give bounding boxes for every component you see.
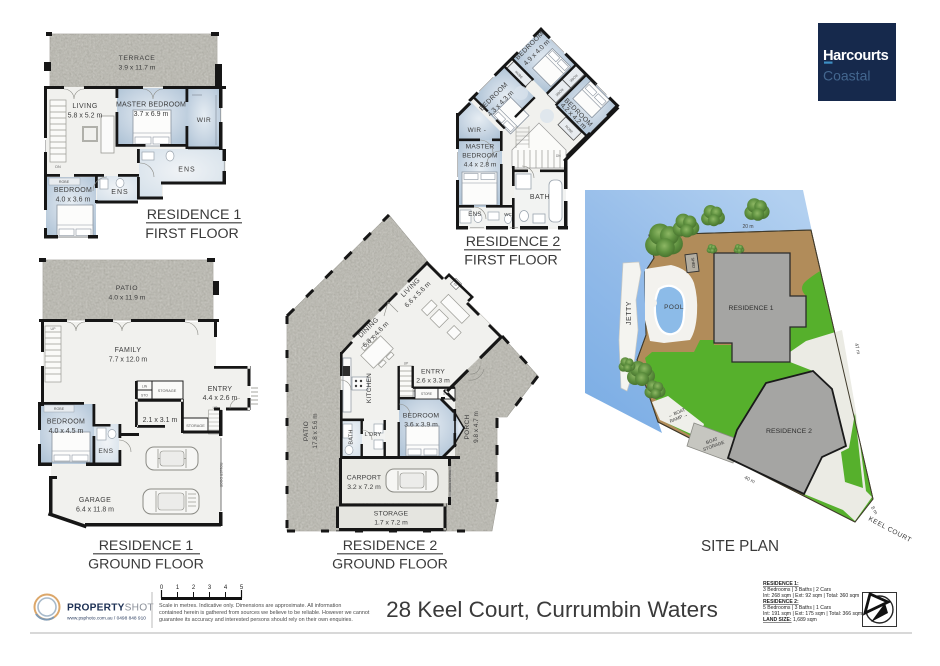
svg-text:RESIDENCE 2: RESIDENCE 2 [766, 428, 812, 435]
svg-text:BATH: BATH [349, 429, 355, 444]
svg-text:RESIDENCE 1: RESIDENCE 1 [99, 538, 194, 554]
svg-text:ROLLER DOOR: ROLLER DOOR [219, 463, 223, 488]
svg-text:4.4 x 2.6 m: 4.4 x 2.6 m [203, 395, 238, 402]
svg-text:POOL: POOL [664, 304, 684, 311]
svg-text:3.6 x 3.9 m: 3.6 x 3.9 m [404, 422, 438, 429]
svg-text:LIN: LIN [142, 385, 148, 389]
svg-text:SITE PLAN: SITE PLAN [701, 538, 779, 555]
svg-text:3.9 x 11.7 m: 3.9 x 11.7 m [119, 65, 156, 72]
svg-text:4.0 x 4.5 m: 4.0 x 4.5 m [49, 428, 84, 435]
svg-text:GARAGE: GARAGE [79, 497, 111, 504]
svg-text:ENS: ENS [178, 167, 195, 174]
svg-text:www.psphoto.com.au / 0498 848: www.psphoto.com.au / 0498 848 910 [67, 616, 146, 622]
svg-text:contained herein is gathered f: contained herein is gathered from source… [159, 610, 370, 616]
svg-text:ROBE: ROBE [54, 407, 65, 411]
svg-text:9.8 x 4.7 m: 9.8 x 4.7 m [473, 411, 480, 443]
svg-text:2.6 x 3.3 m: 2.6 x 3.3 m [416, 378, 450, 385]
svg-text:GROUND FLOOR: GROUND FLOOR [332, 557, 448, 573]
svg-text:PORCH: PORCH [464, 414, 471, 439]
svg-text:ENTRY: ENTRY [208, 386, 233, 393]
svg-text:FAMILY: FAMILY [115, 347, 142, 354]
svg-text:FIRST FLOOR: FIRST FLOOR [464, 253, 558, 269]
svg-text:BEDROOM: BEDROOM [403, 413, 440, 420]
svg-text:5.8 x 5.2 m: 5.8 x 5.2 m [68, 113, 103, 120]
svg-text:ENS: ENS [111, 189, 128, 196]
svg-text:28 Keel Court, Currumbin Water: 28 Keel Court, Currumbin Waters [386, 597, 718, 622]
svg-text:BATH: BATH [530, 194, 550, 201]
svg-text:RESIDENCE 2: RESIDENCE 2 [343, 538, 438, 554]
svg-text:GROUND FLOOR: GROUND FLOOR [88, 557, 204, 573]
svg-text:UP: UP [404, 362, 408, 366]
svg-text:JETTY: JETTY [626, 301, 633, 325]
svg-text:DN: DN [55, 165, 61, 169]
svg-text:ROBE: ROBE [59, 180, 70, 184]
svg-text:WIR -: WIR - [468, 127, 487, 134]
svg-text:BEDROOM: BEDROOM [462, 153, 497, 160]
svg-text:STORE: STORE [421, 392, 432, 396]
svg-text:WC: WC [504, 212, 512, 217]
svg-text:Coastal: Coastal [823, 68, 870, 84]
svg-text:3.7 x 6.9 m: 3.7 x 6.9 m [134, 111, 169, 118]
svg-text:2.1 x 3.1 m: 2.1 x 3.1 m [143, 417, 178, 424]
svg-text:PATIO: PATIO [303, 421, 310, 441]
svg-text:L'DRY: L'DRY [365, 432, 382, 438]
svg-text:guarantee its accuracy and int: guarantee its accuracy and interested pe… [159, 617, 353, 623]
svg-text:4.0 x 3.6 m: 4.0 x 3.6 m [56, 197, 91, 204]
svg-text:BEDROOM: BEDROOM [54, 187, 92, 194]
svg-text:17.8 x 5.6 m: 17.8 x 5.6 m [312, 413, 319, 448]
svg-text:7.7 x 12.0 m: 7.7 x 12.0 m [109, 357, 148, 364]
svg-text:STORAGE: STORAGE [186, 424, 205, 428]
svg-text:RESIDENCE 1: RESIDENCE 1 [729, 305, 774, 312]
svg-text:STORAGE: STORAGE [374, 511, 409, 518]
svg-text:ENTRY: ENTRY [421, 369, 445, 376]
svg-text:KITCHEN: KITCHEN [366, 373, 373, 403]
svg-text:ENS: ENS [468, 211, 482, 218]
svg-text:STO: STO [141, 394, 148, 398]
svg-text:4.4 x 2.8 m: 4.4 x 2.8 m [464, 162, 497, 169]
svg-text:4.0 x 11.9 m: 4.0 x 11.9 m [109, 295, 146, 302]
svg-text:1.7 x 7.2 m: 1.7 x 7.2 m [374, 520, 408, 527]
svg-text:FIRST FLOOR: FIRST FLOOR [145, 226, 239, 242]
svg-text:3.2 x 7.2 m: 3.2 x 7.2 m [347, 484, 381, 491]
svg-text:6.4 x 11.8 m: 6.4 x 11.8 m [76, 507, 114, 514]
svg-text:MASTER BEDROOM: MASTER BEDROOM [116, 102, 186, 109]
svg-text:LIVING: LIVING [72, 103, 97, 110]
svg-text:RESIDENCE 2: RESIDENCE 2 [466, 234, 561, 250]
svg-text:STORAGE: STORAGE [158, 389, 177, 393]
svg-text:MASTER: MASTER [466, 144, 495, 151]
svg-text:UP: UP [51, 327, 57, 331]
svg-text:TERRACE: TERRACE [119, 55, 156, 62]
svg-text:Harcourts: Harcourts [823, 48, 889, 64]
svg-text:Scale in metres. Indicative o: Scale in metres. Indicative only. Dimens… [159, 603, 341, 609]
svg-text:RESIDENCE 1: RESIDENCE 1 [147, 207, 242, 223]
svg-text:PATIO: PATIO [116, 285, 138, 292]
svg-text:PROPERTYSHOT: PROPERTYSHOT [67, 603, 154, 614]
svg-text:CARPORT: CARPORT [347, 475, 382, 482]
svg-text:ROLLER DOOR: ROLLER DOOR [448, 470, 452, 493]
svg-text:20 m: 20 m [742, 224, 753, 230]
svg-text:LAND SIZE: 1,689 sqm: LAND SIZE: 1,689 sqm [763, 617, 817, 623]
svg-text:ENS: ENS [98, 448, 113, 455]
svg-text:WIR: WIR [197, 117, 212, 124]
svg-text:DN: DN [556, 154, 561, 158]
svg-text:BEDROOM: BEDROOM [47, 419, 85, 426]
